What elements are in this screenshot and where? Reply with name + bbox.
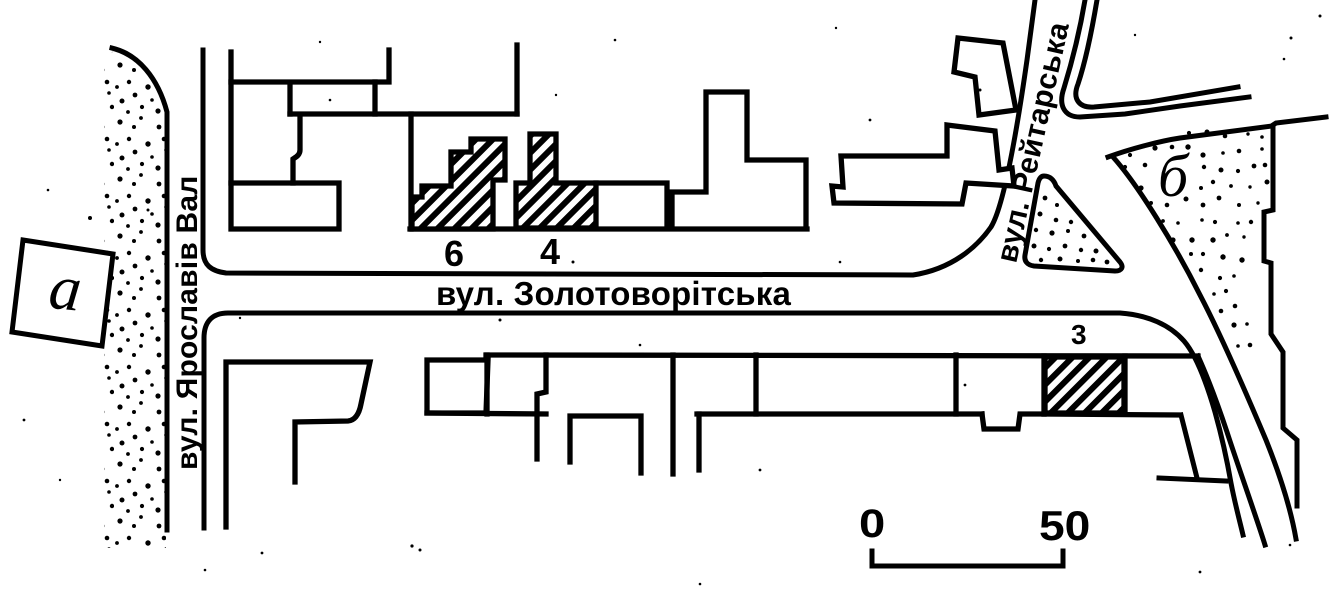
svg-text:6: 6: [444, 233, 464, 274]
svg-text:б: б: [1158, 143, 1190, 209]
svg-text:0: 0: [859, 501, 885, 546]
svg-text:вул. Ярославів Вал: вул. Ярославів Вал: [171, 175, 204, 470]
svg-text:вул. Золотоворітська: вул. Золотоворітська: [436, 275, 791, 312]
svg-text:3: 3: [1071, 319, 1087, 350]
svg-text:50: 50: [1039, 503, 1090, 550]
svg-text:4: 4: [540, 231, 560, 272]
